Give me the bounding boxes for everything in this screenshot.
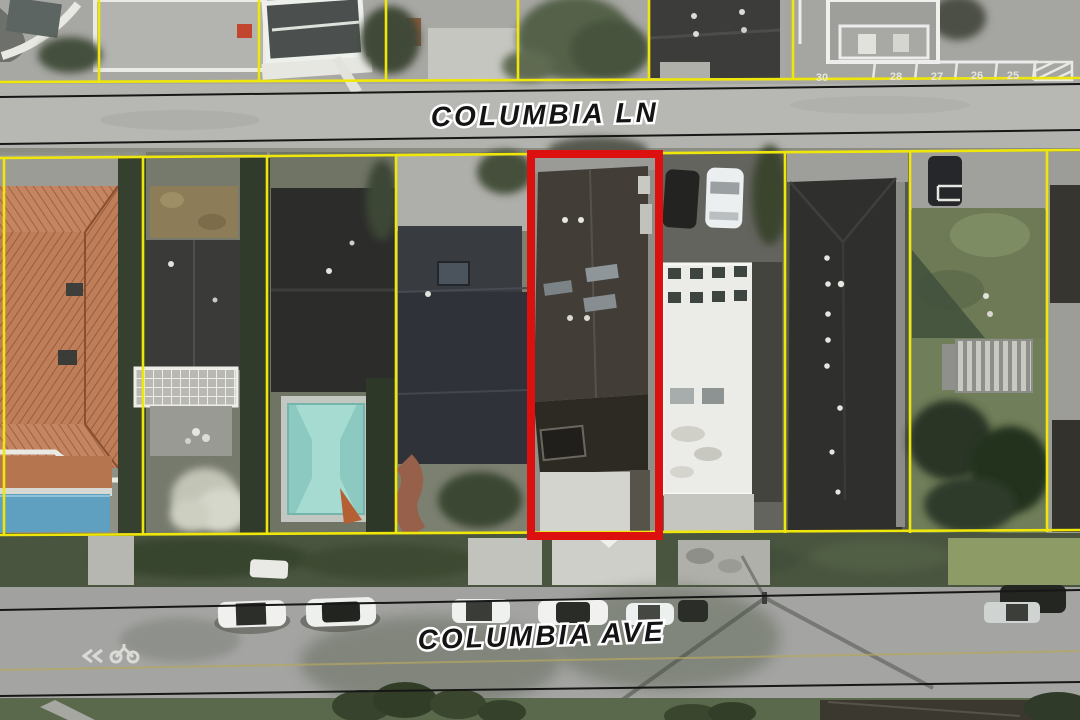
tree <box>477 150 533 194</box>
mossy-garage-roof <box>150 186 238 238</box>
tree <box>360 6 420 74</box>
hedge <box>752 145 788 245</box>
red-object <box>237 24 252 38</box>
slate-roof-main <box>398 292 528 464</box>
car-white <box>452 599 510 623</box>
lower-skylight <box>541 426 586 460</box>
parcel-right-edge <box>1047 152 1080 533</box>
main-block <box>0 145 1080 533</box>
parcel-hip-roof-house <box>785 152 910 533</box>
driveway-cut <box>88 536 134 585</box>
roof-vent <box>562 217 568 223</box>
parcel-lawn-shed <box>908 152 1050 533</box>
utility-box <box>638 176 650 194</box>
path-cut <box>468 538 542 585</box>
skylight <box>438 262 469 285</box>
hedge-strip <box>240 158 270 533</box>
aerial-photo-canvas: COLUMBIA LN COLUMBIA AVE 30 28 27 26 25 <box>0 0 1080 720</box>
brick-path <box>404 462 416 533</box>
parked-car-dark <box>928 156 962 206</box>
stall-number: 30 <box>816 72 828 84</box>
driveway <box>664 494 754 533</box>
parcel-white-modern-house <box>659 145 788 533</box>
parked-car-white <box>250 559 289 579</box>
trees <box>502 50 554 82</box>
stall-number: 28 <box>890 71 902 83</box>
trees <box>570 20 650 80</box>
parked-car-dark <box>662 169 700 229</box>
parking-area <box>785 0 1080 80</box>
utility-box <box>640 204 652 234</box>
utility-pole <box>762 592 767 604</box>
corrugated-shed-roof <box>956 340 1032 392</box>
hedge <box>366 160 398 240</box>
shrubs <box>438 472 522 528</box>
garden-ornament <box>983 293 989 299</box>
aerial-parcel-map: COLUMBIA LN COLUMBIA AVE 30 28 27 26 25 <box>0 0 1080 720</box>
hedge-strip <box>366 378 396 533</box>
subject-parcel <box>531 152 659 533</box>
roof-vent <box>168 261 174 267</box>
parcel-slate-roof-house <box>396 150 533 533</box>
stall-number: 27 <box>931 71 943 83</box>
roof-window <box>670 388 694 404</box>
patio-furniture <box>192 428 200 436</box>
small-pool <box>0 494 110 532</box>
stall-number: 26 <box>971 70 983 82</box>
skylight <box>66 283 83 296</box>
grass-verge <box>948 538 1080 585</box>
tree <box>38 37 102 73</box>
roof-vent <box>425 291 431 297</box>
roof-window <box>702 388 724 404</box>
street-label-columbia-ln: COLUMBIA LN <box>431 97 660 133</box>
roof-vent <box>326 268 332 274</box>
car-dark-small <box>678 600 708 622</box>
lattice-deck <box>135 368 237 406</box>
north-gable-house <box>650 0 780 78</box>
roof-slab <box>1052 420 1080 532</box>
skylight <box>58 350 77 365</box>
stall-number: 25 <box>1007 70 1019 82</box>
parked-car-white <box>705 167 744 228</box>
roof-slab <box>1050 185 1080 303</box>
boulevard-strip <box>0 533 1080 587</box>
